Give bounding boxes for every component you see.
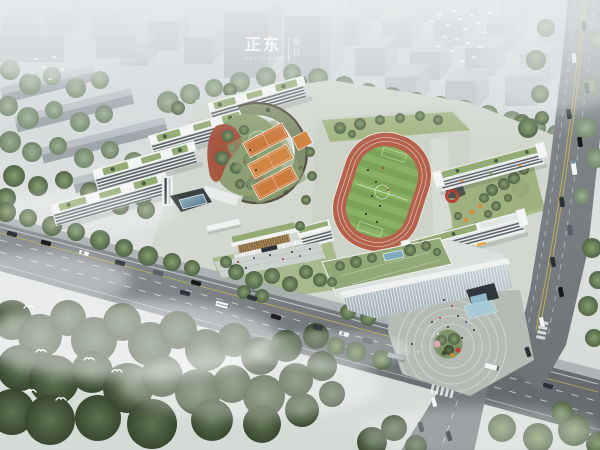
watermark-side-text: 视 觉: [292, 38, 300, 57]
watermark-brand: 正东: [245, 38, 284, 54]
watermark-side-char-2: 觉: [292, 48, 300, 58]
watermark-side-char-1: 视: [292, 38, 300, 48]
watermark-subtitle: EST VISION: [245, 56, 284, 61]
blossom-tree: [434, 341, 441, 348]
rendering-canvas: [0, 0, 600, 450]
watermark: 正东 EST VISION 视 觉: [245, 38, 300, 61]
watermark-main: 正东 EST VISION: [245, 38, 284, 61]
watermark-divider: [288, 38, 289, 61]
aerial-rendering: 正东 EST VISION 视 觉: [0, 0, 600, 450]
